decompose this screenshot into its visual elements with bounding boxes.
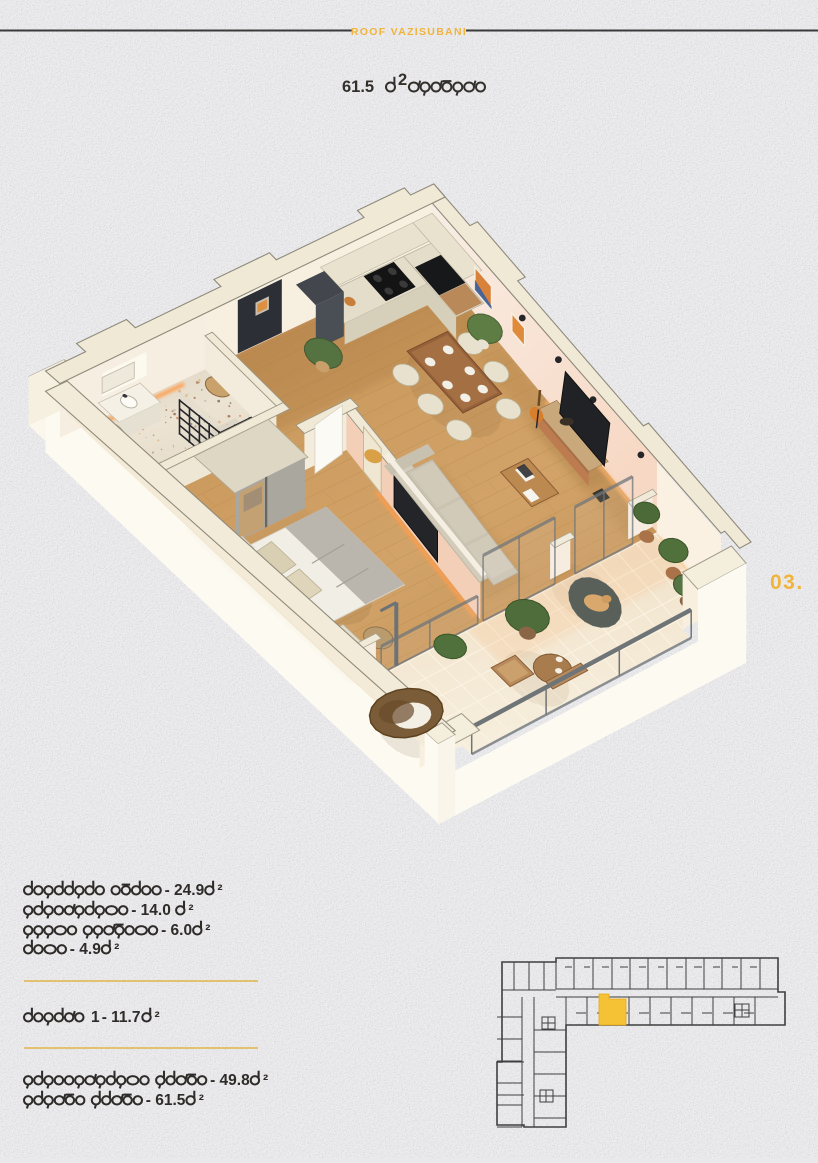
svg-text:²: ² <box>205 922 210 939</box>
svg-text:- 61.5: - 61.5 <box>146 1092 186 1109</box>
svg-text:²: ² <box>114 941 119 958</box>
svg-text:- 4.9: - 4.9 <box>70 941 101 958</box>
svg-text:²: ² <box>217 882 222 899</box>
svg-text:- 6.0: - 6.0 <box>161 922 192 939</box>
svg-text:61.5: 61.5 <box>342 78 374 96</box>
svg-text:²: ² <box>155 1009 160 1026</box>
svg-text:- 24.9: - 24.9 <box>165 882 205 899</box>
svg-text:- 14.0: - 14.0 <box>131 902 171 919</box>
svg-text:- 11.7: - 11.7 <box>102 1009 141 1026</box>
svg-text:²: ² <box>188 902 193 919</box>
svg-text:²: ² <box>199 1092 204 1109</box>
svg-text:03.: 03. <box>770 571 804 594</box>
svg-text:- 49.8: - 49.8 <box>210 1072 250 1089</box>
svg-text:2: 2 <box>398 71 407 89</box>
svg-text:²: ² <box>263 1072 268 1089</box>
svg-text:1: 1 <box>91 1009 100 1026</box>
svg-text:ROOF VAZISUBANI: ROOF VAZISUBANI <box>351 26 467 38</box>
